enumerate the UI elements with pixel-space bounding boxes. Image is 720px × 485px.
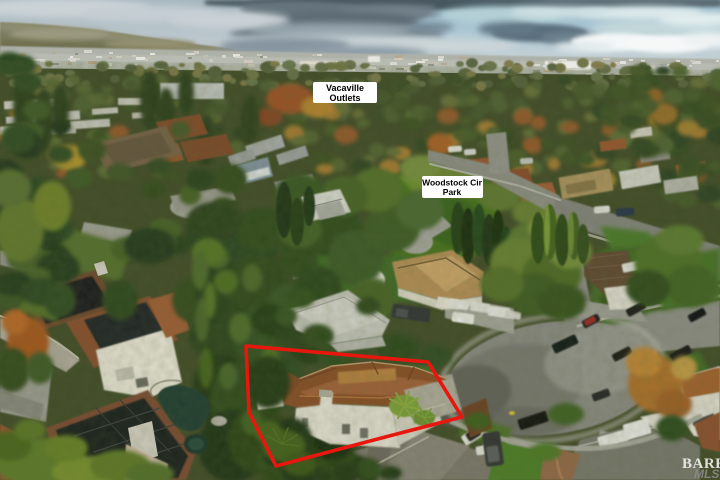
svg-text:Outlets: Outlets [329, 93, 360, 103]
svg-text:Park: Park [443, 187, 462, 197]
svg-text:Woodstock Cir: Woodstock Cir [422, 177, 483, 187]
svg-text:MLS: MLS [694, 467, 719, 480]
svg-text:Vacaville: Vacaville [326, 83, 364, 93]
